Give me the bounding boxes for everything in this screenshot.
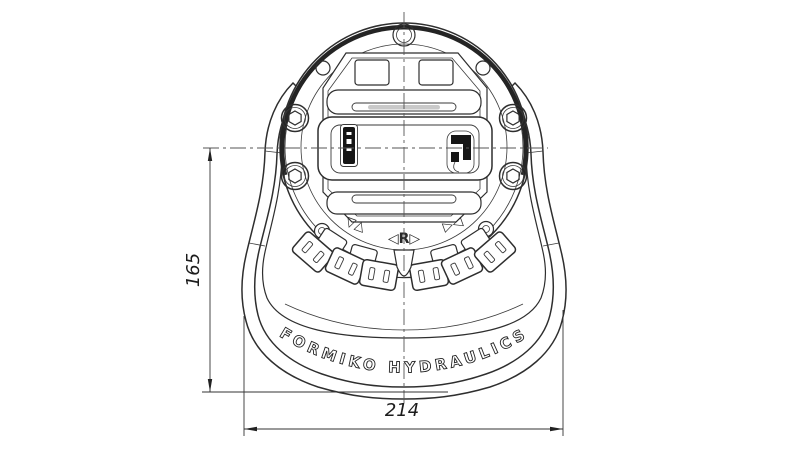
dim-height-value: 165 [183, 253, 204, 287]
technical-drawing-canvas: FORMIKO HYDRAULICS [0, 0, 800, 450]
grip-pad [359, 259, 399, 291]
central-housing [318, 117, 492, 180]
indicator-strip [341, 125, 358, 167]
dim-width-value: 214 [385, 400, 419, 421]
dim-arrow-up [208, 148, 212, 161]
drawing-sheet: FORMIKO HYDRAULICS [0, 0, 800, 450]
dim-arrow-right [550, 427, 563, 431]
dim-arrow-left [244, 427, 257, 431]
dim-arrow-down [208, 379, 212, 392]
